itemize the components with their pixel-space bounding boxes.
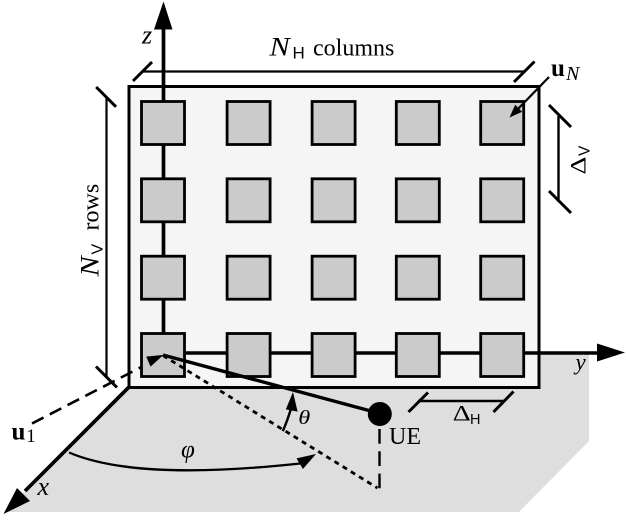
svg-text:N: N — [565, 63, 581, 85]
svg-text:columns: columns — [313, 36, 394, 62]
svg-text:1: 1 — [26, 426, 36, 447]
svg-text:u: u — [12, 419, 26, 446]
svg-text:u: u — [551, 55, 565, 82]
svg-text:Δ: Δ — [567, 157, 591, 175]
svg-text:UE: UE — [389, 424, 421, 450]
svg-text:x: x — [37, 472, 50, 501]
svg-text:H: H — [293, 44, 305, 63]
svg-text:V: V — [90, 244, 107, 255]
svg-text:y: y — [574, 350, 587, 375]
svg-text:H: H — [470, 412, 480, 428]
svg-text:z: z — [141, 21, 152, 50]
svg-text:V: V — [577, 145, 594, 156]
svg-text:N: N — [268, 33, 292, 61]
svg-text:Δ: Δ — [453, 402, 471, 426]
svg-text:rows: rows — [79, 184, 105, 231]
svg-text:θ: θ — [298, 406, 310, 428]
svg-text:φ: φ — [181, 437, 195, 464]
svg-text:N: N — [76, 254, 104, 278]
